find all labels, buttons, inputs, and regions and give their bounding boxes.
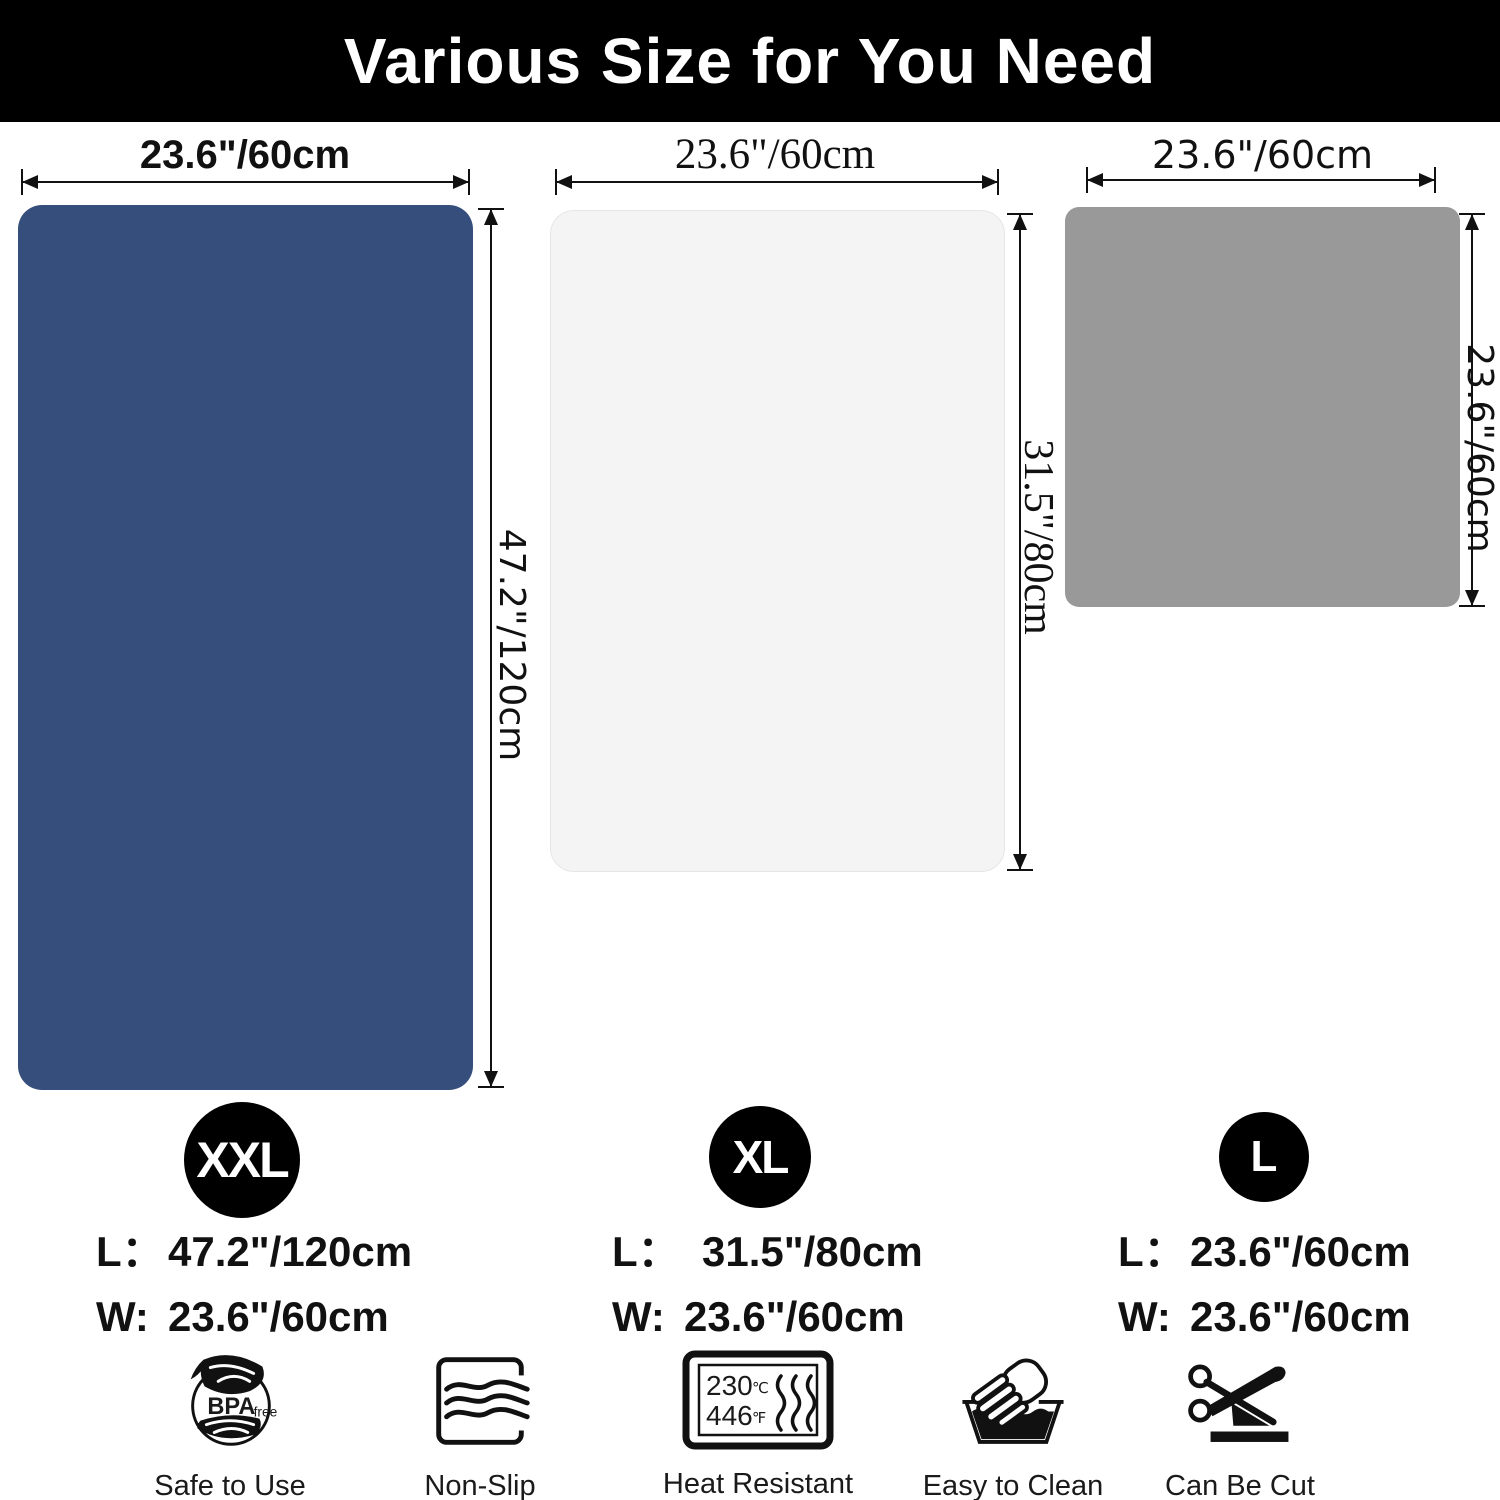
svg-text:free: free (254, 1405, 278, 1420)
l-width-arrow (1083, 164, 1439, 196)
xxl-width-arrow (18, 166, 473, 198)
easy-to-clean-icon (951, 1340, 1075, 1460)
xxl-badge: XXL (184, 1102, 300, 1218)
feature-label: Non-Slip (370, 1470, 590, 1500)
svg-text:℃: ℃ (752, 1379, 769, 1397)
svg-text:446: 446 (706, 1400, 753, 1431)
l-length-row: L： 23.6"/60cm (1118, 1218, 1411, 1279)
svg-text:230: 230 (706, 1370, 753, 1401)
mat-xxl (18, 205, 473, 1090)
non-slip-icon (421, 1342, 539, 1460)
l-dimensions: L： 23.6"/60cm W: 23.6"/60cm (1118, 1218, 1411, 1355)
page-title: Various Size for You Need (0, 0, 1500, 122)
xxl-length-label: 47.2"/120cm (488, 495, 532, 795)
xxl-width-row: W: 23.6"/60cm (96, 1293, 412, 1341)
svg-text:BPA: BPA (207, 1394, 255, 1420)
feature-label: Heat Resistant (640, 1468, 876, 1500)
feature-can-be-cut: Can Be Cut (1130, 1346, 1350, 1500)
can-be-cut-icon (1178, 1346, 1302, 1460)
xxl-dimensions: L： 47.2"/120cm W: 23.6"/60cm (96, 1218, 412, 1355)
l-badge: L (1219, 1112, 1309, 1202)
feature-label: Can Be Cut (1130, 1470, 1350, 1500)
size-infographic: Various Size for You Need 23.6"/60cm 47.… (0, 0, 1500, 1500)
bpa-free-icon: BPA free (171, 1342, 289, 1460)
l-length-label: 23.6"/60cm (1456, 298, 1500, 598)
xl-length-label: 31.5"/80cm (1018, 387, 1062, 687)
xl-length-row: L： 31.5"/80cm (612, 1218, 923, 1279)
feature-label: Easy to Clean (903, 1470, 1123, 1500)
mat-xl (550, 210, 1005, 872)
xl-width-row: W: 23.6"/60cm (612, 1293, 923, 1341)
xl-dimensions: L： 31.5"/80cm W: 23.6"/60cm (612, 1218, 923, 1355)
feature-heat-resistant: 230 ℃ 446 ℉ Heat Resistant (640, 1348, 876, 1500)
mat-l (1065, 207, 1460, 607)
title-banner: Various Size for You Need (0, 0, 1500, 122)
xxl-length-row: L： 47.2"/120cm (96, 1218, 412, 1279)
xl-width-arrow (552, 166, 1002, 198)
heat-resistant-icon: 230 ℃ 446 ℉ (678, 1348, 838, 1458)
feature-non-slip: Non-Slip (370, 1342, 590, 1500)
l-width-row: W: 23.6"/60cm (1118, 1293, 1411, 1341)
feature-label: Safe to Use (120, 1470, 340, 1500)
feature-easy-to-clean: Easy to Clean (903, 1340, 1123, 1500)
svg-text:℉: ℉ (752, 1409, 766, 1427)
feature-safe-to-use: BPA free Safe to Use (120, 1342, 340, 1500)
xl-badge: XL (709, 1106, 811, 1208)
